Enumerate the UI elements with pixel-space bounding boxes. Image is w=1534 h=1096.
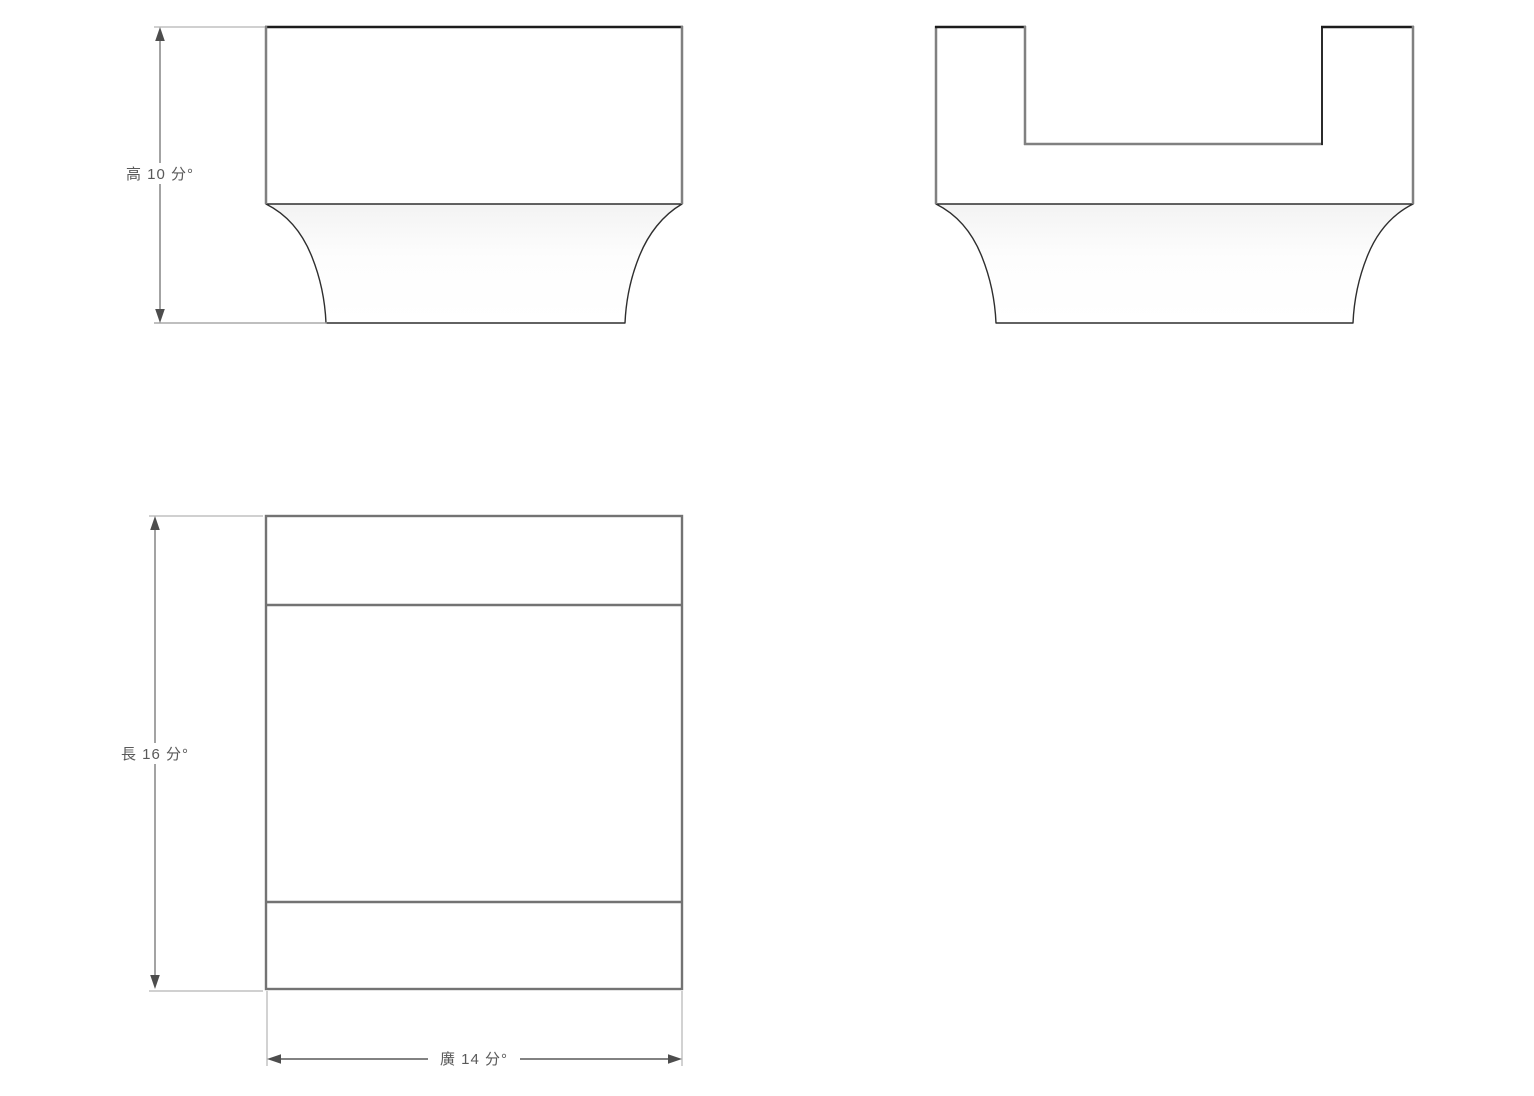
technical-drawing-canvas: 高 10 分° 長 16 分° 廣 14 分° (0, 0, 1534, 1096)
technical-drawing-page: 高 10 分° 長 16 分° 廣 14 分° (0, 0, 1534, 1096)
arrow-left-icon (267, 1054, 281, 1064)
length-dimension-label: 長 16 分° (121, 746, 189, 763)
plan-outline (266, 516, 682, 989)
plan-view (266, 516, 682, 989)
arrow-up-icon (155, 27, 165, 41)
side-flared-base (936, 204, 1413, 323)
side-upper-body (936, 27, 1413, 204)
arrow-up-icon (150, 516, 160, 530)
front-flared-base (266, 204, 682, 323)
width-dimension-label: 廣 14 分° (440, 1051, 508, 1068)
length-dimension: 長 16 分° (110, 516, 263, 991)
width-dimension: 廣 14 分° (267, 991, 682, 1069)
front-upper-body (266, 27, 682, 204)
height-dimension-label: 高 10 分° (126, 166, 194, 183)
side-elevation-view (935, 26, 1414, 323)
arrow-right-icon (668, 1054, 682, 1064)
front-elevation-view (265, 26, 683, 323)
arrow-down-icon (155, 309, 165, 323)
arrow-down-icon (150, 975, 160, 989)
